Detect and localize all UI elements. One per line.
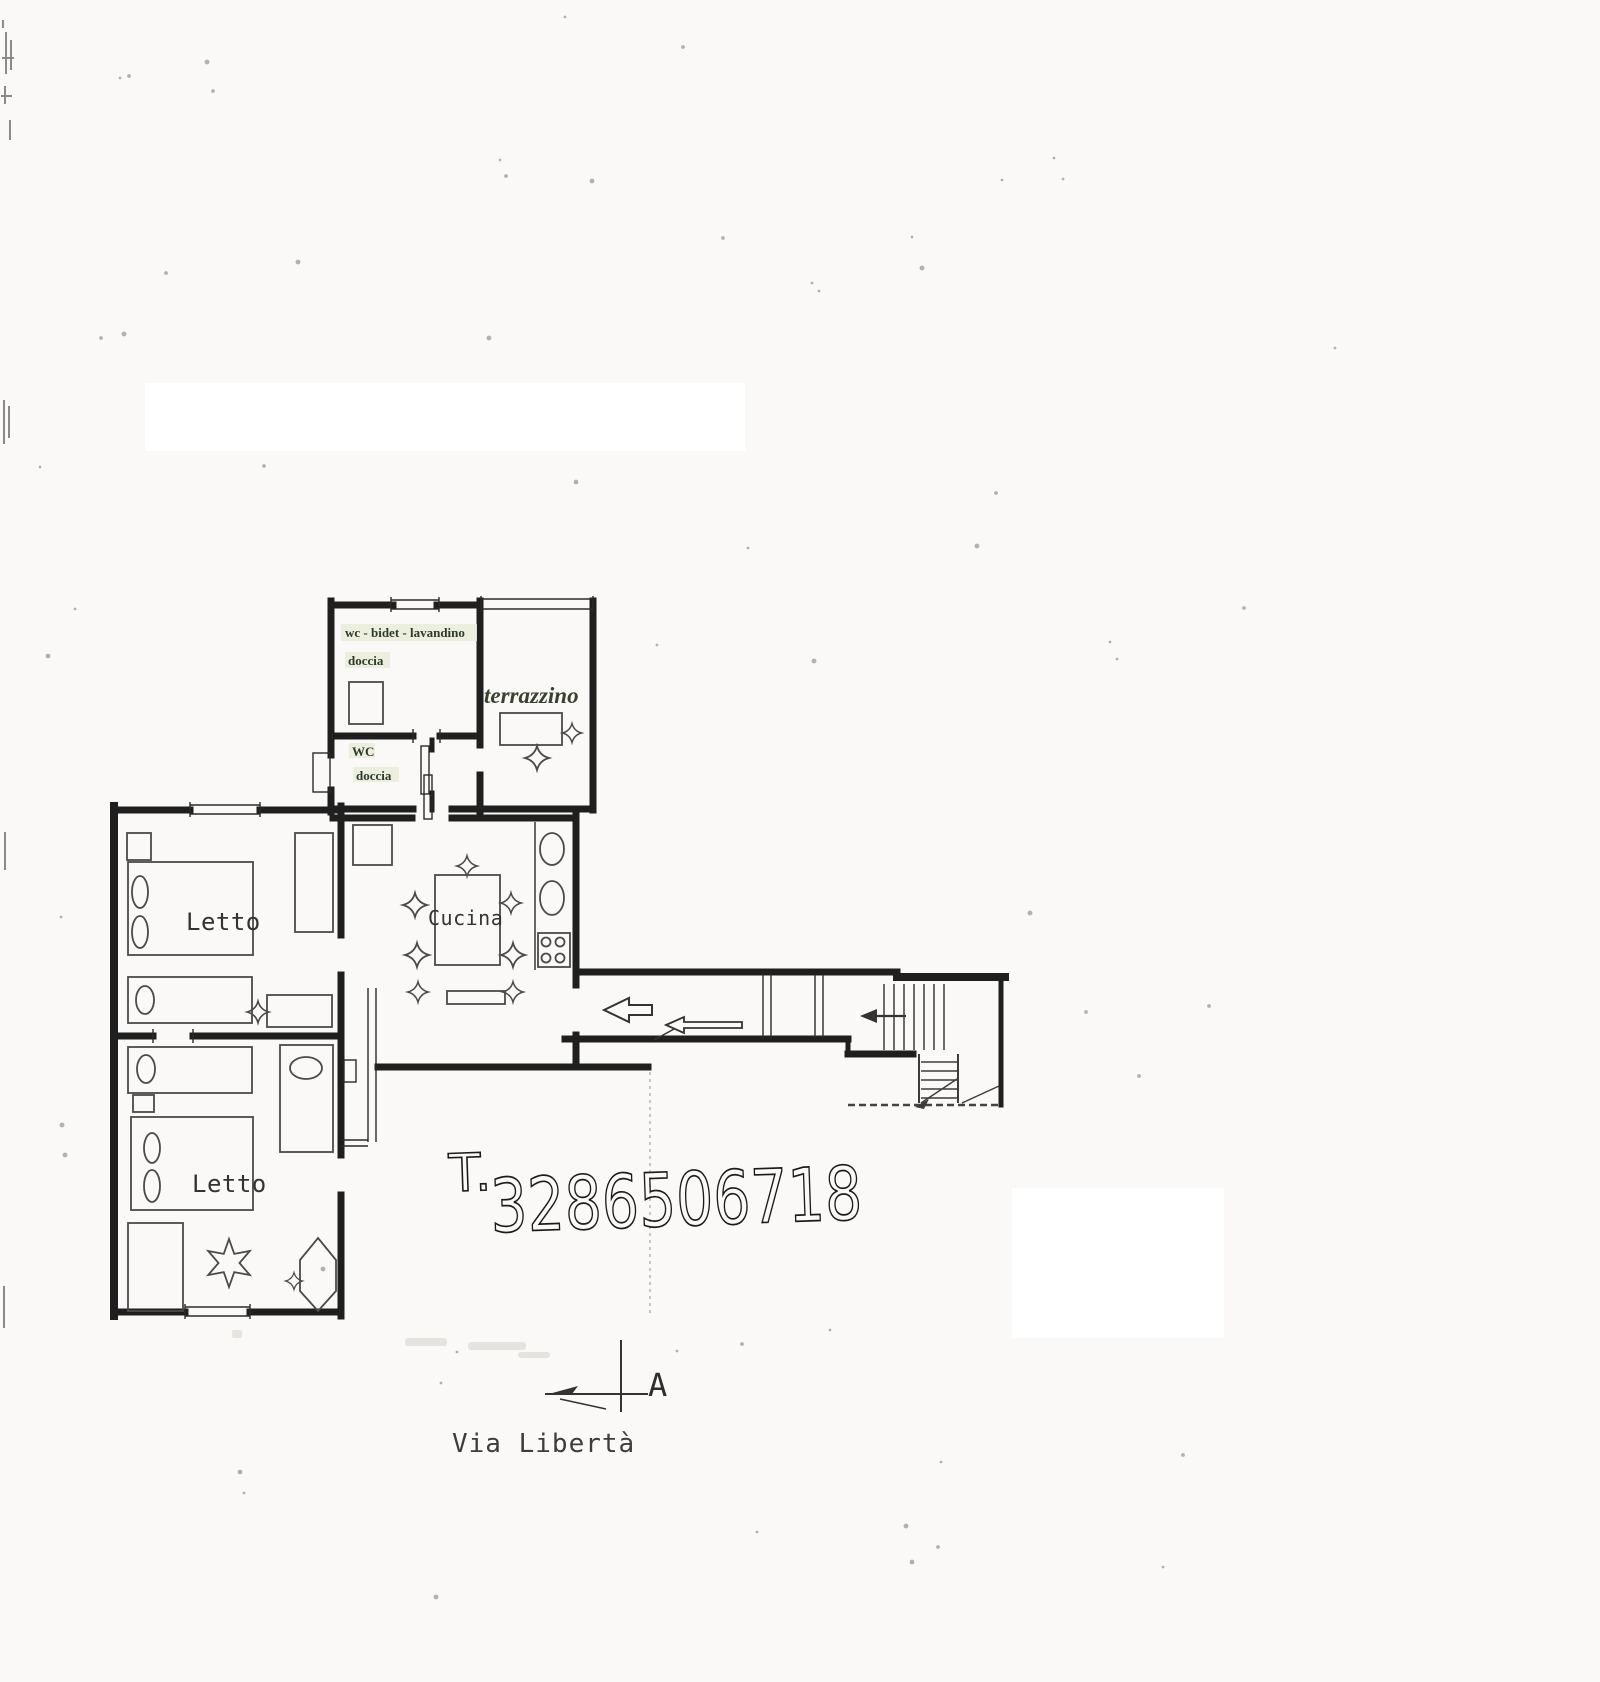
entry-arrow-icon [666, 1017, 742, 1033]
pillow [137, 1055, 155, 1083]
nightstand [133, 1095, 154, 1112]
burner [556, 954, 565, 963]
side-table [300, 1238, 336, 1311]
bathroom-sublabel: doccia [348, 653, 384, 668]
pillow [144, 1170, 160, 1202]
faint-smudge [232, 1330, 550, 1358]
burner [542, 938, 551, 947]
bedroom-bottom-label: Letto [192, 1170, 267, 1198]
scanner-edge-marks [1, 20, 14, 1328]
dresser [128, 1223, 183, 1311]
pillow [132, 916, 148, 948]
wc-label: WC [352, 744, 374, 759]
wardrobe [280, 1045, 333, 1152]
bench [447, 991, 505, 1004]
bedroom-top-label: Letto [186, 908, 261, 936]
bed-single [128, 977, 252, 1023]
external-door-step [313, 753, 330, 792]
wardrobe [295, 833, 333, 932]
chair-icon [562, 723, 581, 742]
sink-basin [540, 833, 564, 865]
terrace-label: terrazzino [484, 683, 579, 708]
chair-icon [501, 943, 525, 967]
sink-basin [540, 881, 564, 915]
pillow [144, 1133, 160, 1163]
chair-icon [247, 1001, 269, 1023]
phone-number: 3286506718 [489, 1151, 864, 1250]
chair-icon [408, 982, 428, 1002]
scanned-floorplan-page: A wc - bidet - lavandino doccia WC docci… [0, 0, 1600, 1682]
door-leaf [421, 746, 429, 794]
nightstand [127, 833, 151, 860]
wc-sublabel: doccia [356, 768, 392, 783]
section-letter: A [648, 1366, 667, 1404]
pillow [136, 986, 154, 1014]
handwritten-phone: T. 3286506718 [447, 1130, 863, 1251]
chair-icon [403, 893, 427, 917]
street-name-label: Via Libertà [452, 1429, 635, 1459]
kitchen-label: Cucina [428, 906, 503, 930]
burner [556, 938, 565, 947]
stair-entry-arrowhead [860, 1009, 877, 1023]
radiator [344, 1060, 356, 1082]
scan-speckles [39, 16, 1337, 1600]
chair-icon [501, 893, 521, 913]
bathroom-label: wc - bidet - lavandino [345, 625, 465, 640]
cabinet [353, 825, 392, 865]
phone-prefix: T. [447, 1143, 492, 1204]
burner [542, 954, 551, 963]
floor-plan-drawing: A wc - bidet - lavandino doccia WC docci… [0, 0, 1600, 1682]
section-marker: A [545, 1340, 667, 1412]
star-decor [208, 1239, 250, 1287]
whiteout-patch-right [1012, 1188, 1224, 1338]
bench [267, 995, 332, 1027]
shower-tray [349, 682, 383, 724]
chair-icon [457, 856, 477, 876]
wardrobe-detail [290, 1057, 322, 1079]
chair-icon [405, 943, 429, 967]
terrace-table [500, 713, 562, 745]
entry-arrow-icon [604, 998, 652, 1022]
bed-single [128, 1047, 252, 1093]
pillow [132, 876, 148, 908]
whiteout-patch-top [145, 383, 745, 451]
chair-icon [525, 746, 549, 770]
staircase [884, 984, 999, 1109]
entry-arrows [604, 998, 906, 1040]
